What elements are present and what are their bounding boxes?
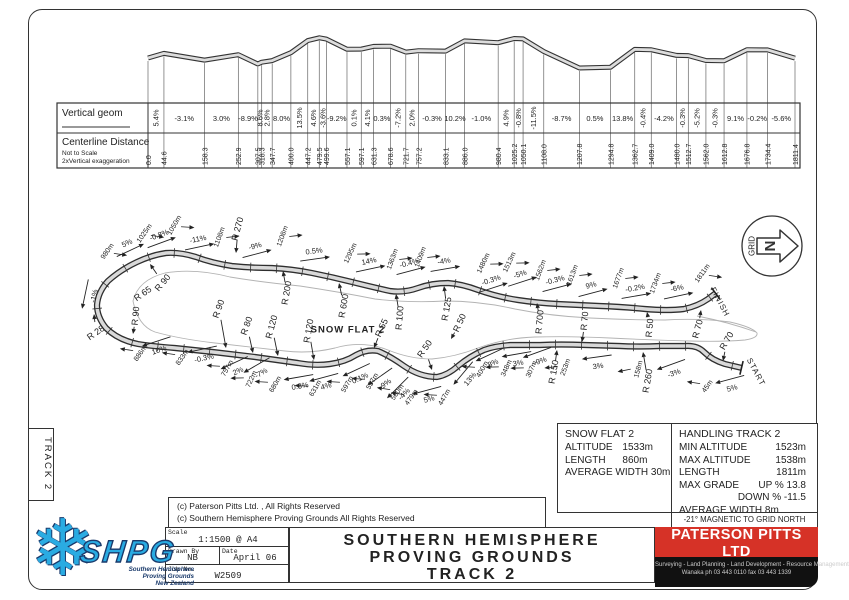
shpg-tagline: Southern Hemisphere Proving Grounds New … xyxy=(94,566,194,587)
date-value: April 06 xyxy=(220,553,290,563)
tagline-line-3: New Zealand xyxy=(94,580,194,587)
side-tab-track2: TRACK 2 xyxy=(29,428,54,501)
info-row: LENGTH860m xyxy=(565,455,664,468)
company-services: Surveying - Land Planning - Land Develop… xyxy=(655,561,818,569)
title-line-3: TRACK 2 xyxy=(290,566,654,583)
paterson-pitts-block: PATERSON PITTS LTD Wanaka Cromwell Queen… xyxy=(655,527,818,583)
info-row: MAX ALTITUDE1538m xyxy=(679,455,810,468)
info-row: ALTITUDE1533m xyxy=(565,442,664,455)
drawing-sheet: Vertical geomCenterline DistanceNot to S… xyxy=(0,0,849,600)
company-name: PATERSON PITTS LTD xyxy=(655,527,818,561)
info-row: AVERAGE WIDTH 30m xyxy=(565,467,664,480)
info-row: MIN ALTITUDE1523m xyxy=(679,442,810,455)
scale-cell: Scale 1:1500 @ A4 xyxy=(166,528,290,547)
title-line-1: SOUTHERN HEMISPHERE xyxy=(290,532,654,549)
date-cell: Date April 06 xyxy=(220,547,290,565)
copyright-box: (c) Paterson Pitts Ltd. , All Rights Res… xyxy=(168,497,546,528)
company-contact: Wanaka ph 03 443 0110 fax 03 443 1339 xyxy=(655,569,818,577)
info-row: DOWN % -11.5 xyxy=(679,492,810,505)
copyright-line-2: (c) Southern Hemisphere Proving Grounds … xyxy=(177,512,537,524)
handling-track-rows: MIN ALTITUDE1523mMAX ALTITUDE1538mLENGTH… xyxy=(679,442,810,517)
shpg-logo: ❄ SHPG Southern Hemisphere Proving Groun… xyxy=(32,512,168,594)
magnetic-declination-note: -21° MAGNETIC TO GRID NORTH xyxy=(671,512,818,528)
info-row: LENGTH1811m xyxy=(679,467,810,480)
tagline-line-2: Proving Grounds xyxy=(94,573,194,580)
company-services-band: Surveying - Land Planning - Land Develop… xyxy=(655,557,818,587)
title-line-2: PROVING GROUNDS xyxy=(290,549,654,566)
snow-flat-title: SNOW FLAT 2 xyxy=(565,428,664,440)
shpg-wordmark: SHPG xyxy=(78,534,178,570)
scale-value: 1:1500 @ A4 xyxy=(166,535,290,545)
handling-track-title: HANDLING TRACK 2 xyxy=(679,428,810,440)
copyright-line-1: (c) Paterson Pitts Ltd. , All Rights Res… xyxy=(177,500,537,512)
paterson-pitts-banner: PATERSON PITTS LTD Wanaka Cromwell Queen… xyxy=(655,527,818,557)
snow-flat-rows: ALTITUDE1533mLENGTH860mAVERAGE WIDTH 30m xyxy=(565,442,664,480)
handling-track-info-box: HANDLING TRACK 2 MIN ALTITUDE1523mMAX AL… xyxy=(671,423,818,513)
drawing-title: SOUTHERN HEMISPHERE PROVING GROUNDS TRAC… xyxy=(289,527,655,583)
snow-flat-info-box: SNOW FLAT 2 ALTITUDE1533mLENGTH860mAVERA… xyxy=(557,423,672,513)
tagline-line-1: Southern Hemisphere xyxy=(94,566,194,573)
info-row: MAX GRADEUP % 13.8 xyxy=(679,480,810,493)
